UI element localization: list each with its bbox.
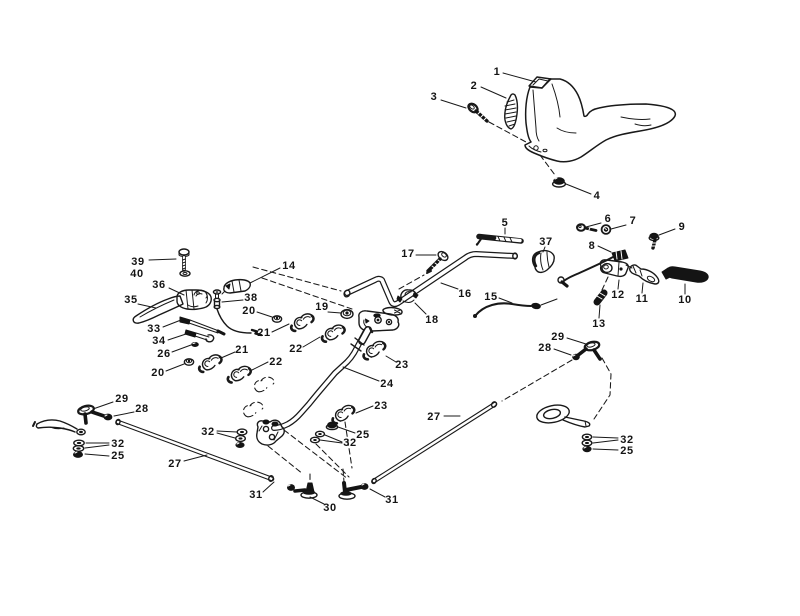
svg-text:27: 27 [168,458,181,470]
svg-text:11: 11 [636,293,649,305]
svg-text:3: 3 [431,91,438,103]
svg-text:18: 18 [425,314,438,326]
svg-text:31: 31 [385,494,398,506]
svg-text:1: 1 [494,66,501,78]
svg-text:20: 20 [151,367,164,379]
svg-text:4: 4 [594,190,601,202]
svg-text:30: 30 [323,502,336,514]
svg-text:27: 27 [427,411,440,423]
svg-text:22: 22 [269,356,282,368]
svg-text:21: 21 [257,327,270,339]
svg-text:23: 23 [374,400,387,412]
svg-text:40: 40 [130,268,143,280]
svg-text:22: 22 [289,343,302,355]
svg-text:25: 25 [356,429,369,441]
svg-text:20: 20 [242,305,255,317]
svg-text:6: 6 [605,213,612,225]
svg-text:10: 10 [678,294,691,306]
svg-text:36: 36 [152,279,165,291]
svg-text:19: 19 [315,301,328,313]
svg-text:25: 25 [620,445,633,457]
svg-text:37: 37 [539,236,552,248]
svg-text:24: 24 [380,378,394,390]
svg-text:31: 31 [249,489,262,501]
svg-text:29: 29 [115,393,128,405]
svg-text:17: 17 [401,248,414,260]
svg-text:7: 7 [630,215,637,227]
svg-text:15: 15 [484,291,497,303]
svg-text:8: 8 [589,240,596,252]
svg-text:32: 32 [201,426,214,438]
svg-text:28: 28 [135,403,148,415]
svg-text:9: 9 [679,221,686,233]
svg-text:13: 13 [592,318,605,330]
svg-text:32: 32 [343,437,356,449]
svg-text:14: 14 [282,260,296,272]
svg-text:23: 23 [395,359,408,371]
svg-text:12: 12 [611,289,624,301]
svg-text:33: 33 [147,323,160,335]
svg-text:2: 2 [471,80,478,92]
svg-text:39: 39 [131,256,144,268]
svg-text:25: 25 [111,450,124,462]
svg-text:16: 16 [458,288,471,300]
svg-text:26: 26 [157,348,170,360]
svg-text:35: 35 [124,294,137,306]
svg-text:28: 28 [538,342,551,354]
svg-text:32: 32 [111,438,124,450]
svg-text:21: 21 [235,344,248,356]
svg-text:5: 5 [502,217,509,229]
svg-text:34: 34 [152,335,166,347]
svg-text:38: 38 [244,292,257,304]
svg-text:29: 29 [551,331,564,343]
